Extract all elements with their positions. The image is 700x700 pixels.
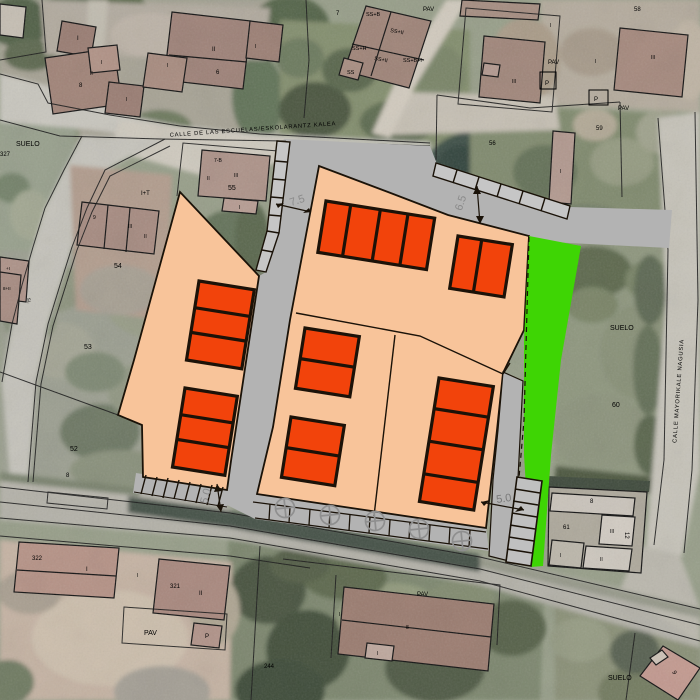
svg-text:59: 59 — [596, 126, 603, 132]
svg-text:I: I — [137, 573, 138, 579]
svg-text:SS+B+I: SS+B+I — [403, 58, 422, 64]
svg-text:P: P — [594, 97, 598, 103]
svg-text:I+T: I+T — [141, 191, 150, 197]
svg-text:5.0: 5.0 — [495, 492, 512, 506]
svg-text:II: II — [212, 47, 216, 53]
svg-text:I: I — [126, 97, 127, 103]
svg-text:7-B: 7-B — [214, 158, 222, 164]
svg-text:I: I — [101, 60, 102, 66]
svg-text:PAV: PAV — [144, 630, 157, 637]
svg-text:III: III — [610, 529, 614, 535]
svg-text:II: II — [600, 557, 603, 563]
svg-text:I: I — [550, 23, 551, 29]
svg-text:SS+B: SS+B — [366, 12, 381, 18]
svg-text:SS+H: SS+H — [352, 46, 367, 52]
svg-text:P: P — [205, 634, 209, 640]
svg-text:9: 9 — [93, 215, 96, 221]
svg-text:PAV: PAV — [618, 106, 629, 112]
svg-text:PAV: PAV — [417, 592, 428, 598]
svg-text:8: 8 — [406, 625, 409, 631]
svg-text:58: 58 — [634, 7, 641, 13]
svg-text:I: I — [255, 44, 256, 50]
svg-text:53: 53 — [84, 344, 92, 351]
svg-text:III: III — [651, 55, 655, 61]
svg-text:61: 61 — [563, 525, 570, 531]
svg-text:12: 12 — [623, 532, 629, 539]
svg-text:II: II — [144, 234, 147, 240]
svg-text:II: II — [90, 71, 93, 77]
svg-text:III: III — [128, 224, 132, 230]
svg-text:54: 54 — [114, 263, 122, 270]
svg-text:I: I — [595, 59, 596, 65]
svg-text:52: 52 — [70, 446, 78, 453]
svg-text:PAV: PAV — [548, 60, 559, 66]
svg-text:321: 321 — [170, 584, 181, 590]
svg-text:I: I — [339, 612, 340, 618]
svg-text:I: I — [167, 63, 168, 69]
svg-text:I: I — [560, 169, 561, 175]
svg-text:I: I — [239, 205, 240, 211]
svg-text:II: II — [207, 176, 210, 182]
svg-text:+I: +I — [6, 266, 10, 271]
svg-text:III: III — [512, 79, 516, 85]
svg-text:I: I — [377, 651, 378, 657]
svg-text:8+II: 8+II — [3, 286, 11, 291]
svg-text:60: 60 — [612, 402, 620, 409]
svg-text:56: 56 — [489, 141, 496, 147]
svg-text:SS: SS — [347, 70, 355, 76]
svg-text:327: 327 — [0, 152, 11, 158]
svg-text:P: P — [545, 81, 549, 87]
svg-text:II: II — [199, 591, 203, 597]
svg-text:322: 322 — [32, 556, 43, 562]
svg-text:PAV: PAV — [423, 7, 434, 13]
svg-text:244: 244 — [264, 664, 275, 670]
svg-text:I: I — [560, 553, 561, 559]
svg-text:SUELO: SUELO — [16, 141, 40, 148]
svg-text:SUELO: SUELO — [608, 675, 632, 682]
svg-text:III: III — [234, 173, 238, 179]
svg-text:55: 55 — [228, 185, 236, 192]
svg-text:SUELO: SUELO — [610, 325, 634, 332]
